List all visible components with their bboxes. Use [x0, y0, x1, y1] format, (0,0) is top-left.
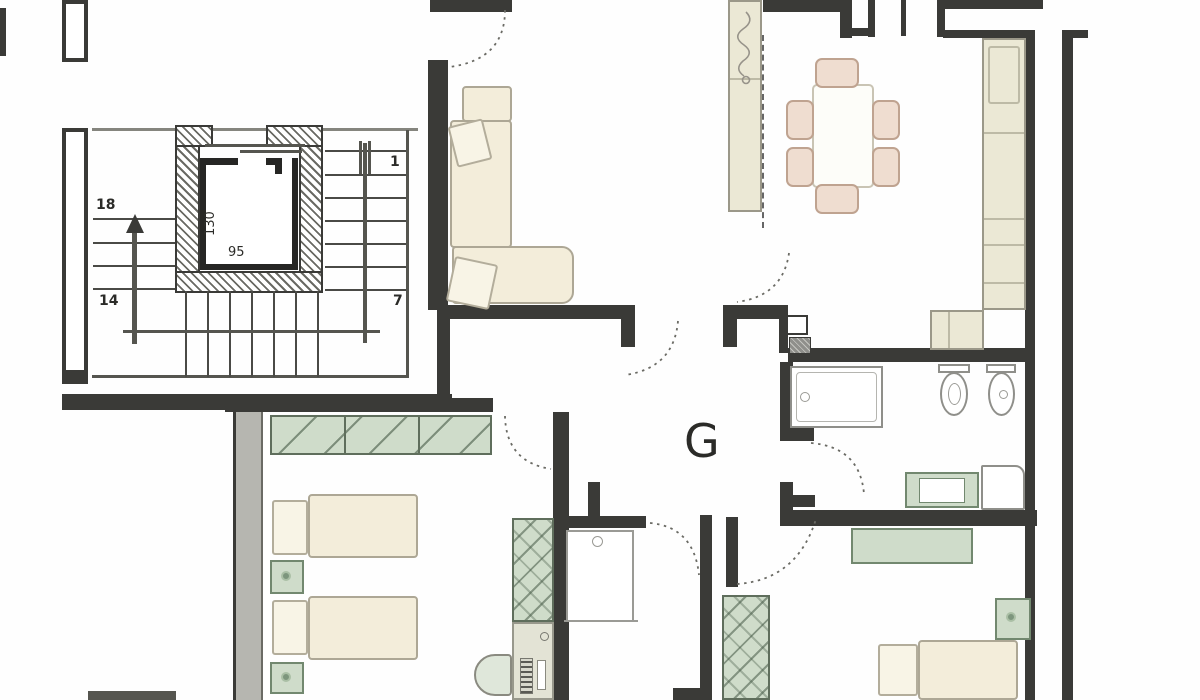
stair-tread	[317, 291, 319, 377]
elevator-shaft-wall	[175, 125, 200, 293]
door-arc	[811, 443, 864, 494]
floor-plan: 18 14 1 7 130 95 G	[0, 0, 1200, 700]
bidet	[988, 372, 1015, 416]
kitchen-counter-line	[948, 312, 950, 348]
wall	[788, 348, 1035, 362]
kitchen-counter-line	[984, 244, 1024, 246]
plant-icon	[281, 672, 291, 682]
desk-equipment	[520, 658, 533, 694]
sofa-cushion	[446, 256, 499, 310]
wall-door-jamb	[621, 305, 635, 347]
shower-drain-icon	[592, 536, 603, 547]
wall	[430, 0, 512, 12]
desk-chair	[474, 654, 512, 696]
door-arc	[737, 253, 789, 302]
wardrobe-divider	[418, 417, 420, 453]
wardrobe	[270, 415, 492, 455]
stair-count-label: 18	[96, 198, 115, 212]
dining-chair	[872, 147, 900, 187]
wall-door-jamb	[723, 305, 737, 347]
bathroom-vanity	[905, 472, 979, 508]
sofa-armrest	[462, 86, 512, 122]
wall	[1062, 30, 1073, 700]
stair-cut-tick	[368, 141, 371, 174]
stair-tread	[295, 291, 297, 377]
kitchen-sink	[988, 46, 1020, 104]
bed-pillow	[272, 500, 308, 555]
wall	[62, 372, 88, 384]
toilet	[940, 372, 968, 416]
door-arc	[650, 523, 699, 575]
wall	[62, 128, 88, 374]
wall	[937, 0, 1043, 9]
wall	[443, 305, 635, 319]
opening-dashed-line	[762, 35, 764, 228]
wall	[88, 691, 176, 700]
wardrobe-divider	[344, 417, 346, 453]
elevator-door-line	[205, 144, 305, 147]
bed	[308, 596, 418, 660]
wall	[901, 0, 906, 36]
shower-tub	[566, 530, 634, 622]
desk-lamp-icon	[540, 632, 549, 641]
dresser	[851, 528, 973, 564]
kitchen-counter	[930, 310, 984, 350]
kitchen-counter-line	[984, 132, 1024, 134]
stair-walk-line	[123, 330, 380, 333]
wall-door-jamb	[726, 517, 738, 587]
duct-shaft-hatched	[789, 337, 811, 354]
bed-pillow	[272, 600, 308, 655]
bed-pillow	[878, 644, 918, 696]
wall	[943, 30, 1027, 38]
vanity-basin	[919, 478, 965, 503]
desk	[512, 622, 554, 700]
wall	[428, 60, 448, 310]
wall	[0, 8, 6, 56]
shower-edge-line	[564, 620, 638, 622]
wall	[700, 515, 712, 700]
wall	[62, 0, 88, 62]
plant-icon	[281, 571, 291, 581]
dining-table	[812, 84, 874, 188]
desk-item	[537, 660, 546, 690]
elevator-cab	[200, 158, 238, 165]
wall	[233, 412, 263, 700]
dining-chair	[815, 184, 859, 214]
stair-count-label: 14	[99, 294, 118, 308]
elevator-door-line	[240, 150, 302, 153]
dining-chair	[815, 58, 859, 88]
stair-direction-arrow	[132, 232, 137, 344]
stair-tread	[273, 291, 275, 377]
elevator-dimension-label: 130	[204, 211, 217, 236]
wall-door-jamb	[793, 495, 815, 507]
dining-chair	[786, 100, 814, 140]
wall	[225, 398, 493, 412]
bathtub-drain-icon	[800, 392, 810, 402]
wardrobe	[512, 518, 554, 622]
bidet-drain-icon	[999, 390, 1008, 399]
wall	[556, 516, 646, 528]
dining-chair	[872, 100, 900, 140]
wall	[780, 510, 1037, 526]
bed	[918, 640, 1018, 700]
stair-boundary-line	[406, 130, 409, 378]
elevator-cab	[275, 158, 282, 174]
kitchen-counter-line	[984, 282, 1024, 284]
stair-tread	[229, 291, 231, 377]
wall-door-jamb	[780, 428, 814, 441]
wall	[868, 0, 875, 37]
stair-tread	[207, 291, 209, 377]
door-arc	[737, 519, 816, 584]
stair-tread	[185, 291, 187, 377]
door-arc	[449, 10, 505, 67]
stair-tread	[251, 291, 253, 377]
plant-icon	[1006, 612, 1016, 622]
elevator-shaft-wall	[175, 271, 323, 293]
door-arc	[505, 416, 551, 469]
wall	[763, 0, 852, 12]
stair-arrow-head-icon	[126, 214, 144, 233]
stair-walk-line	[363, 143, 367, 343]
washing-machine	[981, 465, 1025, 510]
toilet-bowl-inner	[948, 383, 961, 405]
unit-label: G	[684, 418, 720, 464]
elevator-dimension-label: 95	[228, 246, 245, 259]
stair-boundary-line	[92, 128, 418, 131]
wall	[437, 310, 450, 396]
bathtub	[790, 366, 883, 428]
wardrobe	[722, 595, 770, 700]
bed	[308, 494, 418, 558]
entry-closet	[728, 0, 762, 212]
kitchen-counter-line	[984, 218, 1024, 220]
dining-chair	[786, 147, 814, 187]
stair-count-label: 7	[393, 294, 403, 308]
duct-box	[786, 315, 808, 335]
elevator-shaft-wall	[299, 125, 323, 293]
stair-cut-tick	[359, 141, 362, 174]
entry-closet-shelf-line	[730, 78, 760, 80]
stair-count-label: 1	[390, 155, 400, 169]
